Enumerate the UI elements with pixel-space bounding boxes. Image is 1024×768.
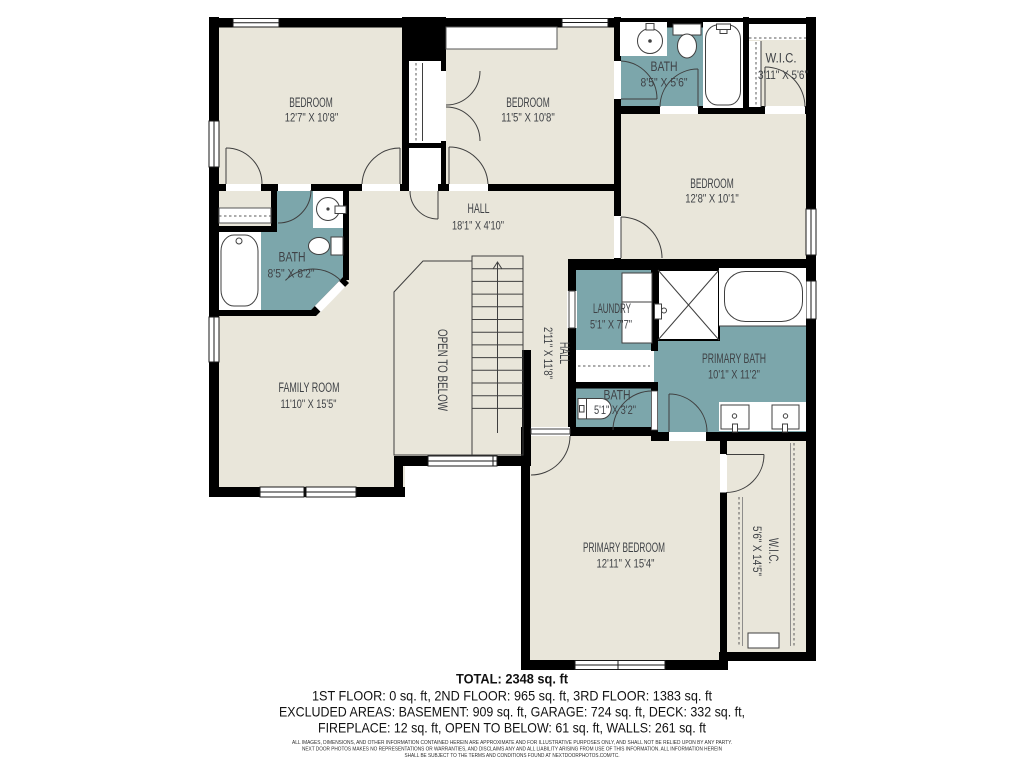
svg-text:PRIMARY BEDROOM: PRIMARY BEDROOM (583, 540, 665, 555)
svg-text:BATH: BATH (279, 250, 306, 265)
svg-text:8'5" X 5'6": 8'5" X 5'6" (641, 76, 688, 90)
svg-text:W.I.C.: W.I.C. (766, 51, 797, 66)
svg-text:5'1" X 7'7": 5'1" X 7'7" (590, 318, 632, 332)
svg-text:10'1" X 11'2": 10'1" X 11'2" (708, 368, 760, 382)
svg-text:8'5" X 8'2": 8'5" X 8'2" (268, 267, 315, 281)
svg-text:TOTAL: 2348 sq. ft: TOTAL: 2348 sq. ft (456, 672, 568, 687)
svg-text:12'8" X 10'1": 12'8" X 10'1" (685, 192, 739, 206)
svg-text:11'5" X 10'8": 11'5" X 10'8" (501, 111, 555, 125)
svg-text:11'10" X 15'5": 11'10" X 15'5" (281, 397, 337, 411)
svg-text:5'6" X 14'5": 5'6" X 14'5" (750, 526, 764, 576)
svg-text:5'1" X 3'2": 5'1" X 3'2" (594, 403, 636, 417)
svg-text:W.I.C.: W.I.C. (766, 538, 781, 564)
svg-text:FAMILY ROOM: FAMILY ROOM (279, 380, 340, 395)
svg-text:OPEN TO BELOW: OPEN TO BELOW (435, 329, 450, 411)
svg-text:12'11" X 15'4": 12'11" X 15'4" (597, 557, 655, 571)
svg-text:BATH: BATH (651, 59, 678, 74)
svg-text:NEXT DOOR PHOTOS MAKES NO REPR: NEXT DOOR PHOTOS MAKES NO REPRESENTATION… (302, 747, 722, 753)
svg-text:1ST FLOOR: 0 sq. ft, 2ND FLOOR: 1ST FLOOR: 0 sq. ft, 2ND FLOOR: 965 sq. … (312, 689, 712, 704)
svg-text:3'11" X 5'6": 3'11" X 5'6" (758, 68, 808, 82)
svg-text:FIREPLACE: 12 sq. ft, OPEN TO: FIREPLACE: 12 sq. ft, OPEN TO BELOW: 61 … (318, 721, 706, 736)
svg-text:BEDROOM: BEDROOM (506, 95, 550, 110)
svg-text:PRIMARY BATH: PRIMARY BATH (702, 351, 766, 366)
svg-text:BATH: BATH (604, 388, 631, 403)
svg-text:2'11" X 11'8": 2'11" X 11'8" (541, 327, 555, 379)
svg-text:ALL IMAGES, DIMENSIONS, AND OT: ALL IMAGES, DIMENSIONS, AND OTHER INFORM… (292, 740, 732, 746)
svg-text:12'7" X 10'8": 12'7" X 10'8" (285, 111, 339, 125)
svg-text:BEDROOM: BEDROOM (289, 95, 333, 110)
svg-text:18'1" X 4'10": 18'1" X 4'10" (452, 219, 504, 233)
svg-text:EXCLUDED AREAS: BASEMENT: 909: EXCLUDED AREAS: BASEMENT: 909 sq. ft, GA… (279, 705, 745, 720)
svg-text:SHALL BE SUBJECT TO THE TERMS: SHALL BE SUBJECT TO THE TERMS AND CONDIT… (405, 753, 620, 759)
svg-text:BEDROOM: BEDROOM (690, 176, 734, 191)
svg-text:LAUNDRY: LAUNDRY (593, 301, 631, 316)
svg-text:HALL: HALL (557, 342, 572, 364)
svg-text:HALL: HALL (468, 201, 490, 216)
